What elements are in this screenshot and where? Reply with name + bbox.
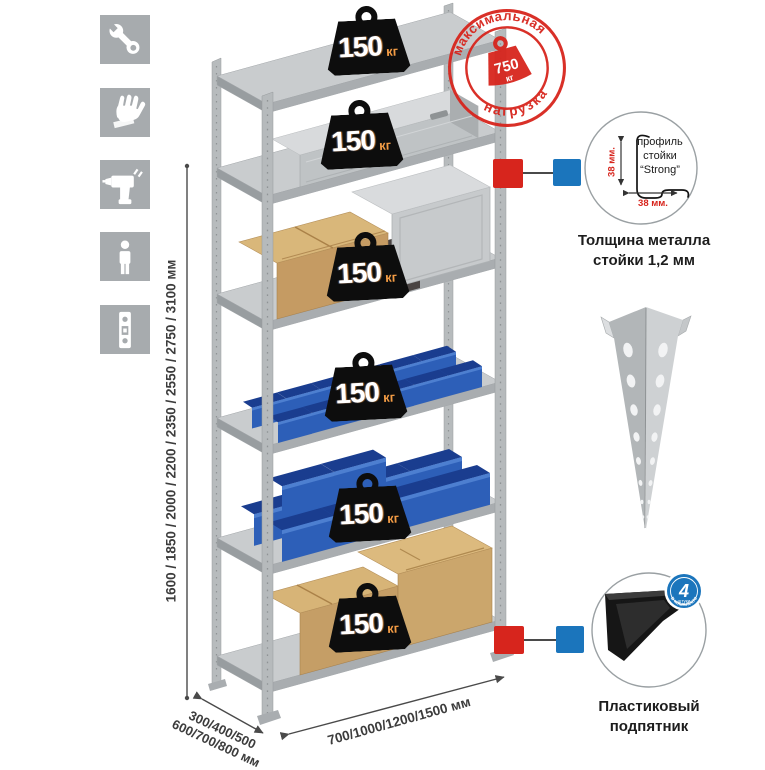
red-marker-bottom xyxy=(494,626,524,654)
shelf6-weight-badge: 150кг xyxy=(325,595,414,653)
weight-value: 150 xyxy=(338,497,383,531)
foot-caption: Пластиковый подпятник xyxy=(598,697,699,736)
corner-post-detail xyxy=(601,307,691,529)
shelf3-weight-badge: 150кг xyxy=(323,244,412,302)
shelf5-weight-badge: 150кг xyxy=(325,485,414,543)
weight-value: 150 xyxy=(337,30,382,64)
stamp-bottom-text: нагрузка xyxy=(479,83,555,127)
plastic-foot-detail: 4 штуки в комплекте xyxy=(592,572,706,688)
weight-value: 150 xyxy=(330,124,375,158)
weight-value: 150 xyxy=(338,607,383,641)
shelf4-weight-badge: 150кг xyxy=(321,364,410,422)
page-root: { "left_toolbar": { "icons": ["wrench", … xyxy=(0,0,765,765)
svg-text:нагрузка: нагрузка xyxy=(479,83,555,127)
red-marker-top xyxy=(493,159,523,188)
shelf2-weight-badge: 150кг xyxy=(317,112,406,170)
profile-label: профиль стойки “Strong” xyxy=(637,136,683,177)
weight-value: 150 xyxy=(334,376,379,410)
height-dimension-label: 1600 / 1850 / 2000 / 2200 / 2350 / 2550 … xyxy=(164,260,179,603)
count-badge: 4 штуки в комплекте xyxy=(665,572,704,611)
profile-caption: Толщина металла стойки 1,2 мм xyxy=(578,231,710,270)
shelf1-weight-badge: 150кг xyxy=(324,18,413,76)
blue-marker-top xyxy=(553,159,581,186)
stamp-weight-icon: 750 кг xyxy=(477,33,532,89)
profile-width-dim: 38 мм. xyxy=(638,198,668,209)
profile-height-dim: 38 мм. xyxy=(607,147,618,177)
weight-value: 150 xyxy=(336,256,381,290)
callout-connectors xyxy=(493,159,584,654)
blue-marker-bottom xyxy=(556,626,584,653)
